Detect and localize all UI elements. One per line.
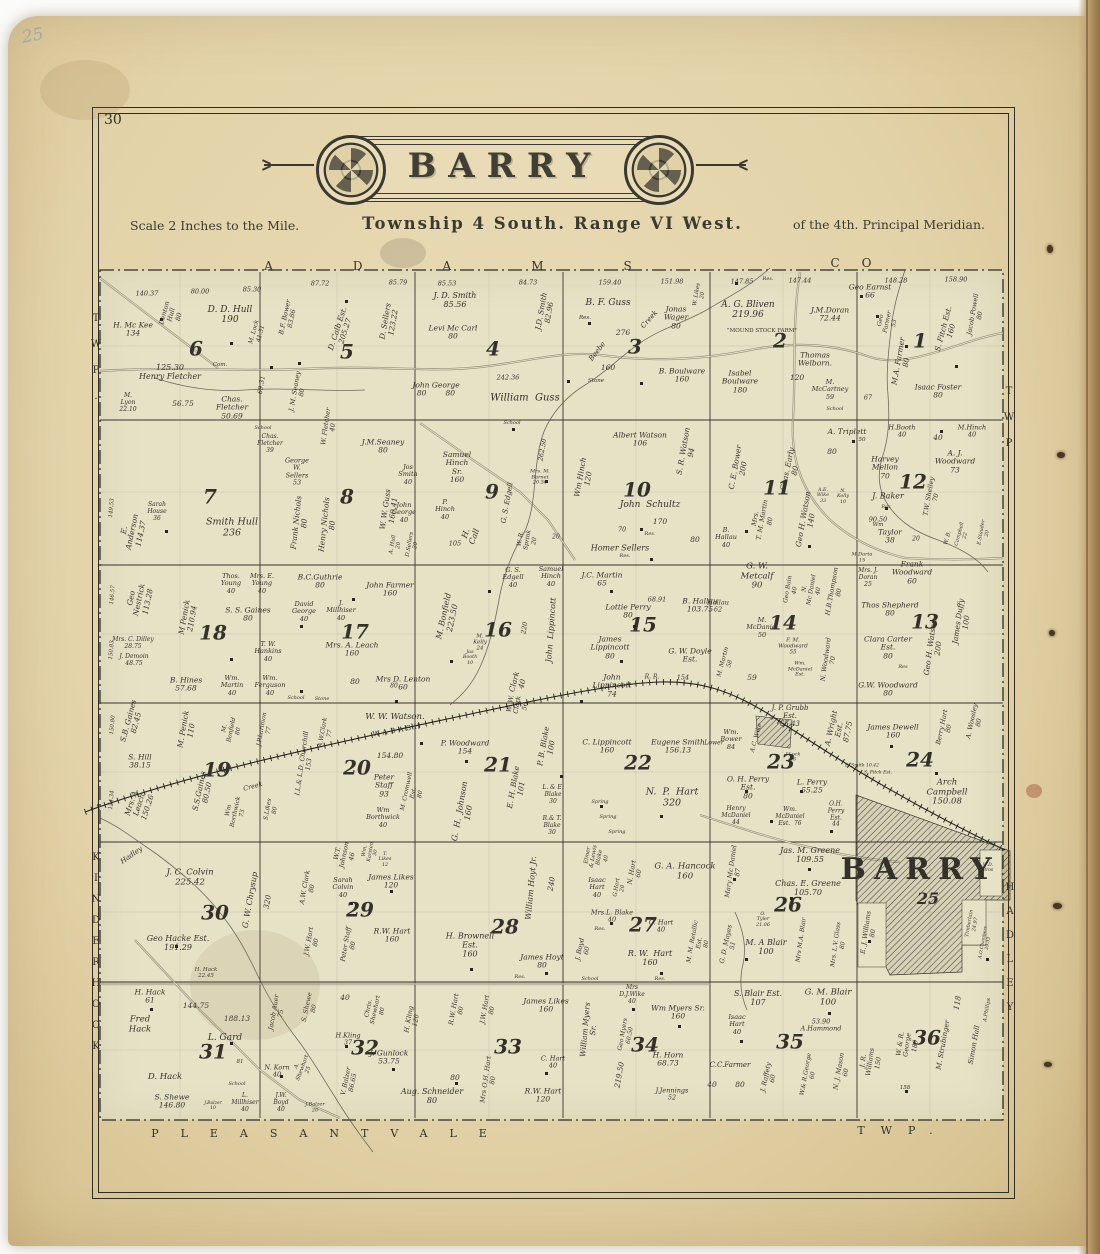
parcel-label: H. Mc Kee 134 [113,322,153,339]
building-mark [905,345,908,348]
section-number-10: 10 [623,479,651,502]
building-mark [745,530,748,533]
parcel-label: 158.90 [945,276,968,283]
parcel-label: Chas. Fletcher 39 [257,434,283,454]
parcel-label: R.& T. Blake 30 [543,816,562,836]
parcel-label: F. M. Woodward 55 [778,638,808,657]
parcel-label: 40 [707,1081,717,1089]
building-mark [808,868,811,871]
parcel-label: Wm. Bower 84 [720,729,741,751]
building-mark [175,945,178,948]
parcel-label: 80 [690,536,700,544]
parcel-label: 154 [677,674,689,681]
building-mark [390,890,393,893]
building-mark [270,366,273,369]
parcel-label: Frank Woodward 60 [892,560,932,585]
building-mark [230,658,233,661]
parcel-label: Samuel Hinch 40 [539,566,564,588]
parcel-label: Res. [763,277,774,283]
building-mark [745,958,748,961]
parcel-label: Wm [873,522,884,528]
parcel-label: Mrs. J. Doran 25 [858,568,878,588]
building-mark [733,878,736,881]
building-mark [660,972,663,975]
parcel-label: O. H. Perry Est. 80 [727,775,769,800]
page-number: 30 [104,112,122,128]
parcel-label: 81 [237,1059,244,1065]
section-number-2: 2 [773,330,787,353]
building-mark [868,940,871,943]
parcel-label: Chas. Fletcher 50.69 [216,395,248,420]
section-number-36: 36 [913,1027,941,1050]
parcel-label: J.M.Seaney 80 [362,439,404,456]
parcel-label: John George 40 [392,502,416,524]
building-mark [986,958,989,961]
building-mark [885,507,888,510]
building-mark [660,815,663,818]
parcel-label: 20 [912,537,920,544]
building-mark [512,428,515,431]
parcel-label: Spring [608,830,625,836]
building-mark [790,897,793,900]
building-mark [352,598,355,601]
parcel-label: Sarah Colvin 40 [333,877,354,899]
parcel-label: G. W. Metcalf 90 [741,563,774,592]
parcel-label: N. Kelly 10 [837,489,849,505]
parcel-label: D. D. Hull 190 [208,305,253,325]
parcel-label: 154.80 [377,752,403,760]
building-mark [560,775,563,778]
parcel-label: J. D. Smith 85.56 [434,291,477,309]
building-mark [345,300,348,303]
parcel-label: 20 [552,535,560,542]
building-mark [860,295,863,298]
section-number-12: 12 [899,471,927,494]
parcel-label: 160 [601,364,615,372]
parcel-label: H. Brownell Est. 160 [446,931,494,958]
parcel-label: Mrs. M. Barnet 20.50 [530,470,550,487]
parcel-label: Homer Sellers [591,543,649,552]
parcel-label: M.Darta 15 [851,552,872,563]
building-mark [800,790,803,793]
parcel-label: Mrs. A. Leach 160 [326,642,379,659]
parcel-label: O. Tyler 21.06 [756,912,770,928]
parcel-label: James Hoyt 80 [520,954,564,971]
parcel-label: Mrs. E. Young 40 [250,573,274,595]
building-mark [567,380,570,383]
building-mark [940,430,943,433]
building-mark [610,922,613,925]
building-mark [488,590,491,593]
building-mark [830,830,833,833]
parcel-label: H. Hack 22.45 [195,967,218,979]
building-mark [395,700,398,703]
parcel-label: 84.73 [519,279,538,286]
parcel-label: Mrs. C. Dilley 28.75 [112,637,154,651]
parcel-label: 80 [827,448,837,456]
building-mark [450,660,453,663]
parcel-label: J. Demoin 48.75 [119,654,148,668]
parcel-label: S. Blair Est. 107 [734,989,782,1007]
building-mark [890,745,893,748]
parcel-label: M. Lyon 22.10 [119,393,136,413]
parcel-label: A. Triplett [828,428,867,436]
section-number-30: 30 [201,902,229,925]
parcel-label: D. Hack [148,1073,182,1083]
section-number-26: 26 [774,894,802,917]
building-mark [740,1040,743,1043]
paper-hole [1057,452,1065,458]
building-mark [350,902,353,905]
parcel-label: Eugene Smith 156.13 [651,739,705,756]
edge-label-hadley: H A D L E Y [1006,876,1015,1020]
parcel-label: S. Hill 38.15 [128,754,151,771]
building-mark [160,318,163,321]
edge-label-pleasantvale: PLEASANTVALE [151,1128,509,1140]
parcel-label: Res. [620,554,631,560]
building-mark [545,972,548,975]
parcel-label: Wm. Martin 40 [221,675,244,697]
parcel-label: W. R. Sprink 20 [516,528,540,551]
parcel-label: N. Korn 40 [264,1065,289,1080]
parcel-label: G. S. Edgell 40 [502,567,523,589]
section-number-32: 32 [351,1037,379,1060]
parcel-label: 53.90 A.Hammond [801,1019,842,1034]
parcel-label: Taylor 38 [878,529,902,546]
parcel-label: Res. [515,975,526,981]
parcel-label: School [826,407,843,413]
building-mark [633,625,636,628]
parcel-label: 105 [449,540,461,547]
parcel-label: Arch Campbell 150.08 [927,779,968,808]
parcel-label: Isaac Hart 40 [588,877,605,899]
building-mark [905,1090,908,1093]
parcel-label: 144.75 [183,1002,209,1010]
parcel-label: R.W. Hart 160 [374,928,411,945]
section-number-31: 31 [199,1041,227,1064]
pencil-annotation: 25 [20,24,45,47]
parcel-label: B. Hines 57.68 [170,677,202,694]
parcel-label: Albert Watson 106 [613,432,667,449]
section-number-4: 4 [486,338,500,361]
parcel-label: 80 [735,1081,745,1089]
building-mark [770,820,773,823]
parcel-label: James Dewell 160 [867,724,918,741]
parcel-label: Wm Myers Sr. 160 [651,1005,705,1022]
building-mark [640,382,643,385]
parcel-label: H.Booth 40 [888,425,915,440]
parcel-label: A.E. Wike 33 [817,488,829,504]
parcel-label: Res. [645,532,656,538]
parcel-label: R.W. Hart 120 [525,1088,562,1105]
adjacent-page-edge [1078,0,1100,1254]
parcel-label: B. F. Guss [585,298,630,308]
parcel-label: James Lippincott 80 [591,635,630,660]
building-mark [745,790,748,793]
parcel-label: Geo Earnst 66 [849,284,892,301]
section-number-13: 13 [911,611,939,634]
parcel-label: 140.37 [136,290,159,297]
paper-hole [1047,245,1053,253]
section-number-24: 24 [906,749,934,772]
parcel-label: Jos Smith 40 [398,464,418,486]
building-mark [455,1082,458,1085]
parcel-label: Geo Hacke Est. 191.29 [147,934,210,952]
parcel-label: George W. Sellers 53 [285,457,309,486]
edge-label-twp-left: T W P . [91,306,101,410]
parcel-label: Jas Booth 10 [463,650,477,666]
parcel-label: Henry McDaniel 44 [721,806,750,826]
parcel-label: B.C.Guthrie 80 [298,574,343,591]
building-mark [735,282,738,285]
edge-label-adams: ADAMS [264,260,711,274]
building-mark [345,1045,348,1048]
title-banner: BARRY [258,128,752,210]
section-number-33: 33 [494,1036,522,1059]
parcel-label: Thomas Welborn. [798,352,832,369]
building-mark [420,742,423,745]
section-number-25: 25 [917,890,939,908]
building-mark [935,772,938,775]
parcel-label: J. Millhiser 40 [326,600,355,622]
building-mark [620,660,623,663]
section-number-35: 35 [776,1031,804,1054]
edge-label-kinderhook: K I N D E R H O O K [92,847,101,1057]
parcel-label: Aug. Schneider 80 [401,1087,463,1105]
parcel-label: G. W. Doyle Est. [668,648,711,665]
building-mark [280,1075,283,1078]
parcel-label: G. A. Hancock 160 [654,862,715,881]
building-mark [230,1042,233,1045]
parcel-label: B. Hallau 40 [715,527,737,549]
parcel-label: 148.28 [885,277,908,284]
parcel-label: Res. [579,315,591,321]
atlas-page: 25 30 BARRY Scale 2 Inches to the Mile. … [0,0,1100,1254]
building-mark [678,1025,681,1028]
parcel-label: 70 [618,526,626,533]
section-number-21: 21 [484,754,512,777]
building-mark [876,315,879,318]
parcel-label: H. Hack 61 [134,989,165,1006]
building-mark [545,1072,548,1075]
parcel-label: C.C.Farmer [710,1062,751,1070]
parcel-label: 125.30 Henry Fletcher [139,363,201,381]
section-number-18: 18 [199,622,227,645]
parcel-label: W. W. Watson. [365,713,424,723]
parcel-label: Levi Mc Carl 80 [429,325,478,342]
parcel-label: Harvey Mellon 70 [871,455,899,480]
parcel-label: Elmer & Lewis Blake 40 [583,844,611,871]
building-mark [955,365,958,368]
parcel-label: J. C. Colvin 225.42 [166,868,213,887]
section-number-17: 17 [341,621,369,644]
parcel-label: A. G. Bliven 219.96 [721,300,774,320]
parcel-label: 87.72 [311,280,330,287]
paper-hole [1053,903,1062,909]
section-number-28: 28 [491,916,519,939]
parcel-label: S. Shewe 146.80 [155,1094,190,1111]
parcel-label: Smith Hull 236 [206,517,258,538]
parcel-label: Mrs D. Lenton 60 [376,676,431,693]
building-mark [808,545,811,548]
building-mark [610,590,613,593]
parcel-label: J. P. Grubb Est. 65.43 [772,705,809,729]
building-mark [580,700,583,703]
parcel-label: 67 [864,394,872,401]
parcel-label: C. Hart 40 [541,1056,565,1071]
edge-label-twp-bottom: TWP. [857,1125,948,1137]
parcel-label: L. Perry 55.25 [797,779,827,796]
parcel-label: 170 [653,518,667,526]
parcel-label: Jonas Wager 80 [664,305,688,330]
parcel-label: L. & E. Blake 30 [542,785,563,805]
parcel-label: John George 80 80 [412,382,459,399]
building-mark [392,1068,395,1071]
parcel-label: B. Boulware 160 [659,368,705,385]
building-mark [470,968,473,971]
building-mark [300,690,303,693]
section-number-3: 3 [628,336,642,359]
parcel-label: T. W. Hankins 40 [254,641,281,663]
parcel-label: J.Jennings 52 [656,1088,689,1103]
town-label-barry: BARRY [841,853,1000,887]
parcel-label: S. S. Gaines 80 [225,607,270,624]
building-mark [298,362,301,365]
parcel-label: 120 [790,374,804,382]
building-mark [600,805,603,808]
parcel-label: R. R. [645,675,660,682]
parcel-label: Stone [588,378,604,384]
building-mark [650,558,653,561]
parcel-label: W. W. Clark 56 [506,694,531,716]
parcel-label: James Likes 120 [368,874,413,891]
parcel-label: M. A Blair 100 [745,938,786,956]
parcel-label: Sarah House 36 [147,502,166,522]
subtitle-row: Scale 2 Inches to the Mile. Township 4 S… [92,214,1013,238]
building-mark [230,342,233,345]
parcel-label: Fred Hack [129,1015,151,1034]
parcel-label: Wm. McDaniel Est. 76 [775,807,804,827]
building-mark [150,1008,153,1011]
parcel-label: Peter Staff 93 [374,773,394,798]
parcel-label: Com. [213,362,227,368]
section-number-11: 11 [763,477,791,500]
section-number-27: 27 [629,914,657,937]
parcel-label: J.M.Doran 72.44 [811,307,849,324]
parcel-label: School [581,977,598,983]
parcel-label: T. Likes 12 [379,852,392,868]
parcel-label: Thos. Young 40 [221,573,241,595]
parcel-label: S. Fitch Est. [864,770,892,775]
parcel-label: Isabel Boulware 180 [722,369,758,394]
parcel-label: J.Balzer 10 [204,1101,222,1111]
section-number-5: 5 [340,341,354,364]
parcel-label: 40 [933,434,943,442]
paper-hole [1049,630,1055,636]
parcel-label: Jas. M. Greene 109.55 [780,846,840,864]
parcel-label: School [254,426,271,432]
parcel-label: L. Millhiser 40 [231,1093,258,1113]
parcel-label: 85.79 [389,279,408,286]
parcel-label: Res. [655,977,666,983]
parcel-label: School [287,696,304,702]
parcel-label: J. R. Williams 150 [858,1046,884,1077]
parcel-label: James Likes 160 [523,998,568,1015]
parcel-label: A. J. Woodward 73 [935,449,975,474]
parcel-label: G. M. Blair 100 [805,988,852,1007]
parcel-label: 242.36 [497,374,520,381]
parcel-label: G.W. Woodward 80 [858,682,918,699]
parcel-label: Stone [315,697,330,703]
parcel-label: 188.13 [224,1015,250,1023]
parcel-label: J.W. Boyd 40 [273,1093,288,1113]
section-number-19: 19 [203,759,231,782]
parcel-label: Samuel Hinch Sr. 160 [443,451,471,485]
parcel-label: Res [898,665,907,671]
building-mark [852,440,855,443]
building-mark [300,625,303,628]
parcel-label: 80.00 [191,288,210,295]
section-number-7: 7 [203,486,217,509]
parcel-label: School [503,421,520,427]
parcel-label: 80 [450,1074,460,1082]
parcel-label: 159.40 [599,279,622,286]
parcel-label: 147.44 [789,277,812,284]
parcel-label: School [228,1082,245,1088]
parcel-label: P. Hinch 40 [435,499,455,521]
building-mark [165,530,168,533]
section-number-1: 1 [913,330,927,353]
section-number-8: 8 [340,486,354,509]
building-mark [545,480,548,483]
parcel-label: E. Smith 10.42 [845,763,879,768]
building-mark [828,1012,831,1015]
section-number-9: 9 [485,481,499,504]
parcel-label: Wm Borthwick 40 [366,807,400,829]
parcel-label: 56.75 [172,400,193,408]
section-number-23: 23 [767,751,795,774]
parcel-label: Spring [599,815,616,821]
parcel-label: O.H. Perry Est. 44 [828,801,844,828]
parcel-label: John Lippincott 74 [593,673,632,698]
section-number-6: 6 [189,338,203,361]
parcel-label: 85.53 [438,280,457,287]
parcel-label: J.C. Martin 65 [581,572,622,589]
building-mark [632,1008,635,1011]
parcel-label: 80 [350,678,360,686]
parcel-label: 40 [340,994,350,1002]
parcel-label: Res. [595,927,606,933]
parcel-label: Wm. McDaniel Est. [788,662,812,679]
parcel-label: Isaac Foster 80 [915,384,962,401]
building-mark [640,528,643,531]
parcel-label: William Guss [490,392,559,403]
parcel-label: R. W. Hart 160 [628,949,672,967]
parcel-label: 68.91 [648,596,667,603]
parcel-label: Clara Carter Est. 80 [864,635,912,660]
parcel-label: 151.98 [661,278,684,285]
parcel-label: 50 [859,437,866,443]
section-number-16: 16 [484,619,512,642]
edge-label-co: CO [830,257,893,271]
parcel-label: Wm. Ferguson 40 [255,675,286,697]
parcel-label: 59 [747,674,757,682]
building-mark [465,760,468,763]
parcel-label: John Farmer 160 [366,582,413,599]
parcel-label: 85.30 [243,286,262,293]
parcel-label: M.Hinch 40 [958,425,986,440]
parcel-label: David George 40 [292,601,316,623]
